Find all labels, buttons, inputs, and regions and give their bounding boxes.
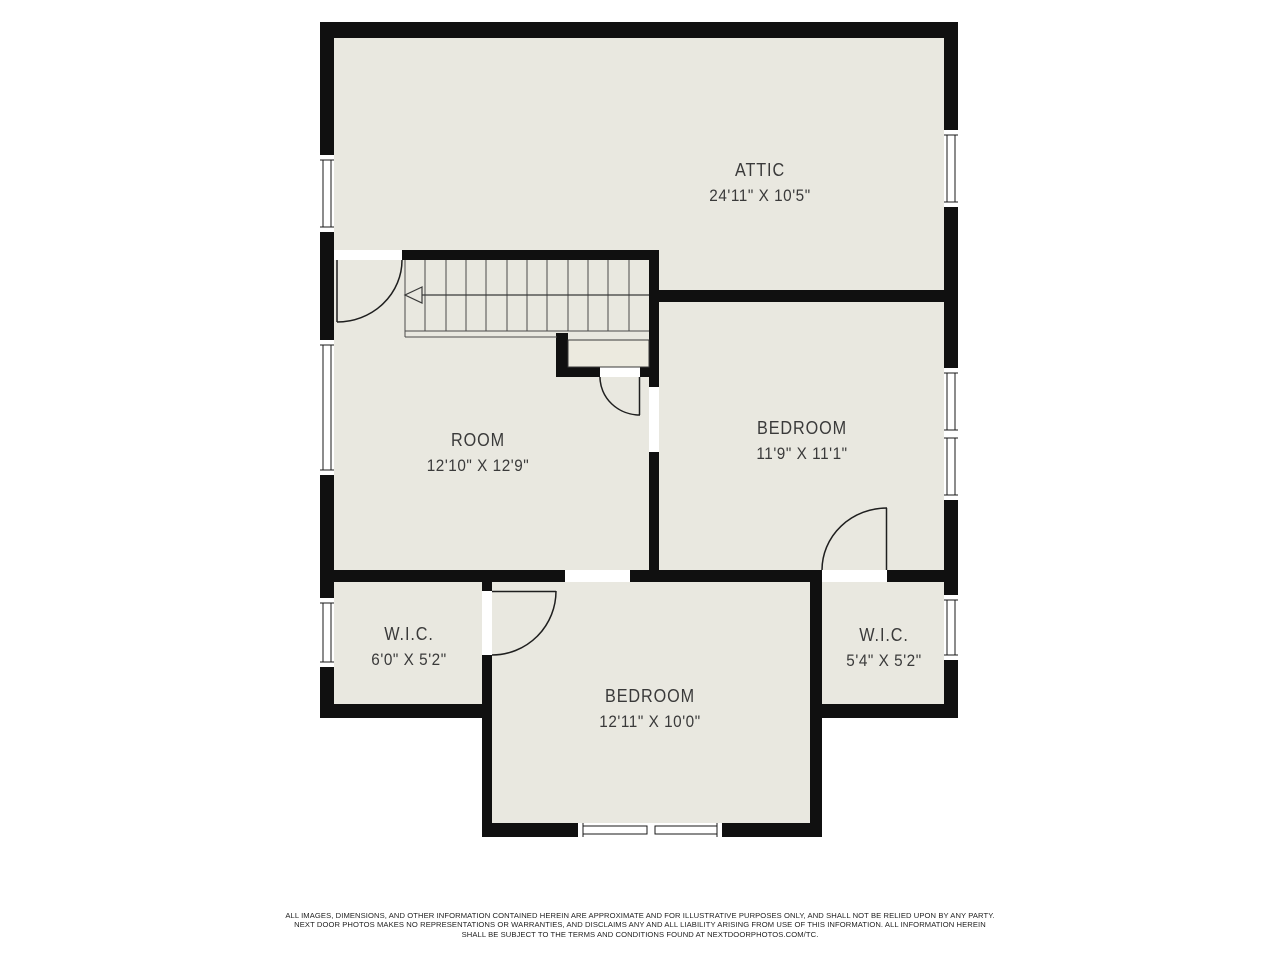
room-name: W.I.C. bbox=[846, 625, 921, 646]
room-dimensions: 6'0" X 5'2" bbox=[371, 650, 446, 670]
window-bedroom-right-double bbox=[944, 368, 958, 500]
window-attic-left bbox=[320, 155, 334, 232]
room-label-attic: ATTIC 24'11" X 10'5" bbox=[709, 160, 810, 206]
window-attic-right bbox=[944, 130, 958, 207]
disclaimer-line-3: SHALL BE SUBJECT TO THE TERMS AND CONDIT… bbox=[260, 930, 1020, 939]
room-name: BEDROOM bbox=[599, 686, 700, 707]
opening-alcove-door bbox=[600, 367, 640, 377]
wall-stairs-top bbox=[402, 250, 659, 260]
room-label-bedroom-lower: BEDROOM 12'11" X 10'0" bbox=[599, 686, 700, 732]
wall-lower-bedroom-right bbox=[810, 571, 822, 837]
room-label-room: ROOM 12'10" X 12'9" bbox=[427, 430, 530, 476]
wall-exterior-bottom-right bbox=[810, 704, 958, 718]
wall-exterior-bottom-left bbox=[320, 704, 492, 718]
room-dimensions: 24'11" X 10'5" bbox=[709, 186, 810, 206]
room-label-wic-left: W.I.C. 6'0" X 5'2" bbox=[371, 624, 446, 670]
disclaimer-line-1: ALL IMAGES, DIMENSIONS, AND OTHER INFORM… bbox=[260, 911, 1020, 920]
disclaimer-line-2: NEXT DOOR PHOTOS MAKES NO REPRESENTATION… bbox=[260, 920, 1020, 929]
disclaimer: ALL IMAGES, DIMENSIONS, AND OTHER INFORM… bbox=[260, 911, 1020, 939]
wall-attic-bedroom bbox=[649, 290, 944, 302]
room-name: W.I.C. bbox=[371, 624, 446, 645]
stair-alcove bbox=[568, 340, 649, 367]
window-room-left bbox=[320, 340, 334, 475]
opening-lower-bedroom-wic-door bbox=[482, 591, 492, 655]
opening-room-lower-bedroom-passage bbox=[565, 570, 630, 582]
room-label-bedroom-upper: BEDROOM 11'9" X 11'1" bbox=[756, 418, 847, 464]
room-dimensions: 5'4" X 5'2" bbox=[846, 651, 921, 671]
wall-exterior-top bbox=[320, 22, 958, 38]
opening-room-top-door bbox=[334, 250, 402, 260]
room-name: ROOM bbox=[427, 430, 530, 451]
room-label-wic-right: W.I.C. 5'4" X 5'2" bbox=[846, 625, 921, 671]
window-wic-left bbox=[320, 598, 334, 667]
room-dimensions: 12'11" X 10'0" bbox=[599, 712, 700, 732]
floor-plan: ATTIC 24'11" X 10'5" ROOM 12'10" X 12'9"… bbox=[0, 0, 1280, 960]
room-name: BEDROOM bbox=[756, 418, 847, 439]
room-dimensions: 12'10" X 12'9" bbox=[427, 456, 530, 476]
opening-bedroom-wic-door bbox=[822, 570, 887, 582]
room-dimensions: 11'9" X 11'1" bbox=[756, 444, 847, 464]
floor-plan-drawing bbox=[0, 0, 1280, 960]
window-wic-right bbox=[944, 595, 958, 660]
room-name: ATTIC bbox=[709, 160, 810, 181]
opening-room-bedroom-passage bbox=[649, 387, 659, 452]
window-lower-bedroom-double bbox=[578, 823, 722, 837]
